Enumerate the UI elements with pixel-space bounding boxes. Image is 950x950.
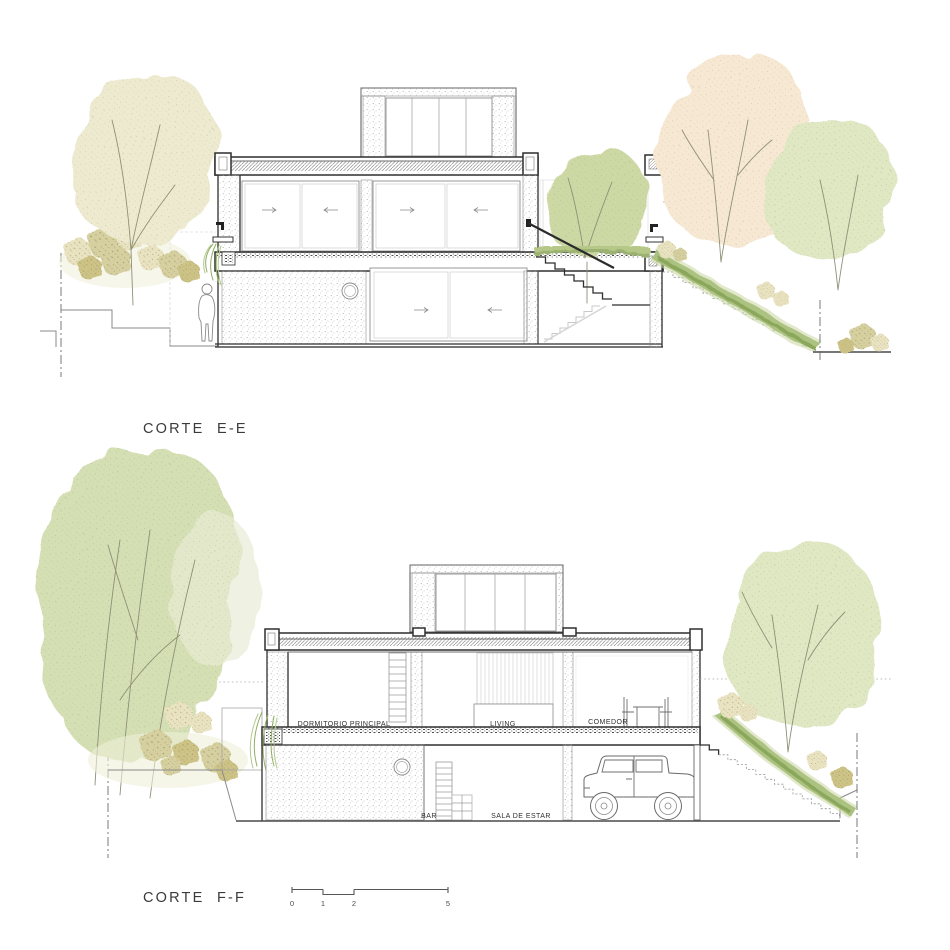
architectural-sheet: CORTE E-E <box>0 0 950 950</box>
ff-stair-elevation <box>436 762 472 820</box>
ff-penthouse <box>410 565 563 632</box>
ff-comedor-furniture <box>622 697 672 727</box>
ee-courtyard-right-pier <box>646 224 663 347</box>
ff-dormitorio-ladder <box>389 653 406 722</box>
scale-tick-5: 5 <box>446 899 450 908</box>
section-corte-ee: CORTE E-E <box>40 55 895 437</box>
ee-section-title: CORTE E-E <box>143 421 248 437</box>
ff-lower-floor: BAR SALA DE ESTAR <box>236 745 840 821</box>
ee-planter-ledge-left <box>213 237 233 242</box>
room-label-sala: SALA DE ESTAR <box>491 813 551 820</box>
ee-courtyard <box>535 151 650 303</box>
ff-garage-car <box>584 756 695 820</box>
scale-bar: 0 1 2 5 <box>290 887 450 908</box>
sections-drawing: CORTE E-E <box>0 0 950 950</box>
ff-site-right <box>700 542 893 858</box>
scale-tick-2: 2 <box>352 899 356 908</box>
ff-site-left <box>37 451 265 858</box>
scale-tick-0: 0 <box>290 899 294 908</box>
ee-bushes-right <box>658 241 889 354</box>
ee-building <box>204 88 663 347</box>
room-label-bar: BAR <box>421 813 437 820</box>
room-label-comedor: COMEDOR <box>588 719 628 726</box>
ee-site-left <box>40 74 218 377</box>
ff-living-slat-wall <box>474 653 553 727</box>
scale-tick-1: 1 <box>321 899 325 908</box>
section-corte-ff: DORMITORIO PRINCIPAL LIVING COMEDOR <box>37 451 893 908</box>
ee-person-figure <box>199 284 215 341</box>
ee-roof-slab <box>215 153 538 175</box>
ee-site-right <box>655 55 895 362</box>
ee-penthouse <box>361 88 516 158</box>
ff-floor-slab <box>262 727 700 745</box>
ee-lower-floor <box>215 268 663 347</box>
ee-slope-vegetation <box>655 255 818 349</box>
ff-section-title: CORTE F-F <box>143 890 246 906</box>
